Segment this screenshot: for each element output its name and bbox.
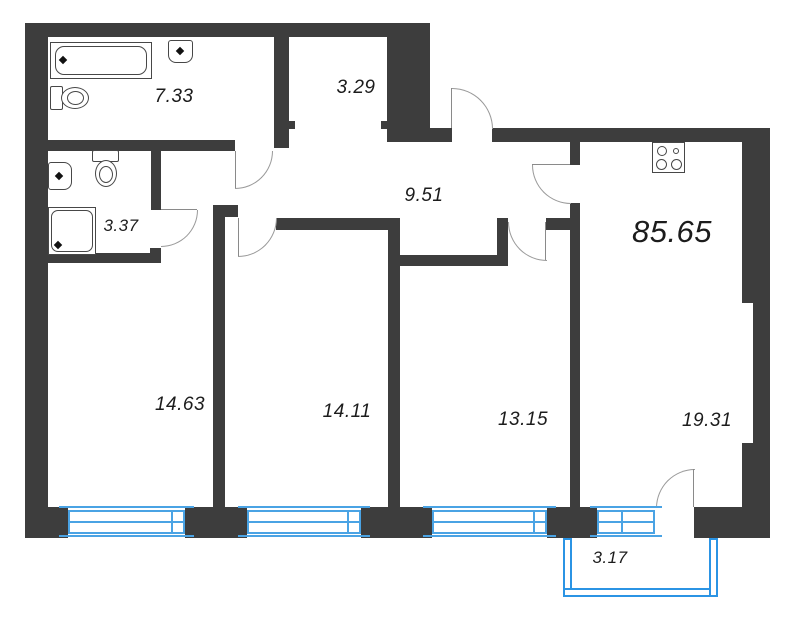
- wall-niche-south: [400, 255, 500, 266]
- total-area-label: 85.65: [632, 214, 712, 250]
- window-icon: [434, 521, 545, 523]
- stove-burner-icon: [673, 148, 679, 154]
- wall-bottom-a: [25, 507, 68, 538]
- window-icon: [59, 535, 194, 537]
- floor-plan: 7.33 3.29 9.51 3.37 85.65 14.63 14.11 13…: [0, 0, 800, 622]
- room-area-label-bathroom: 7.33: [155, 86, 194, 108]
- wall-pillar: [387, 23, 430, 142]
- window-icon: [249, 521, 359, 523]
- window-icon: [590, 535, 662, 537]
- stove-burner-icon: [671, 159, 682, 170]
- toilet-icon: [99, 166, 113, 183]
- stove-burner-icon: [657, 146, 667, 156]
- wall-wc-east: [151, 151, 161, 210]
- window-icon: [171, 512, 173, 532]
- window-icon: [238, 506, 370, 508]
- wall-bedroom1-east-cap: [225, 205, 238, 217]
- wall-bathroom-south: [25, 140, 235, 151]
- window-icon: [533, 512, 535, 532]
- wall-right-notch: [753, 303, 770, 443]
- room-area-label-kitchen-living: 19.31: [682, 410, 732, 432]
- wall-bedroom3-door-piece: [546, 218, 570, 230]
- wall-right-upper: [742, 128, 770, 303]
- balcony-door-leaf: [693, 469, 694, 507]
- opening-jamb-left: [289, 121, 295, 129]
- wall-bedroom2-bedroom3: [388, 218, 400, 507]
- bathroom-door-arc: [235, 151, 273, 189]
- kitchen-door-arc: [532, 165, 571, 204]
- wall-top: [25, 23, 430, 37]
- wall-bathroom-storage-divider: [274, 37, 289, 148]
- room-area-label-bedroom1: 14.63: [155, 394, 205, 416]
- stove-burner-icon: [656, 159, 667, 170]
- wall-hall-bedroom2: [276, 218, 400, 230]
- wc-door-arc: [161, 210, 198, 247]
- entrance-door-arc: [452, 88, 493, 129]
- room-area-label-wc: 3.37: [103, 216, 138, 236]
- room-area-label-hallway: 9.51: [405, 185, 444, 207]
- wall-top-right-a: [430, 128, 452, 142]
- room-area-label-balcony: 3.17: [592, 548, 627, 568]
- room-area-label-storage: 3.29: [337, 77, 376, 99]
- window-icon: [590, 506, 662, 508]
- wall-niche-stub: [497, 218, 508, 266]
- balcony-door-arc: [656, 469, 695, 508]
- wc-door-leaf: [161, 209, 197, 210]
- bedroom3-door-leaf: [545, 222, 546, 260]
- window-icon: [59, 506, 194, 508]
- wall-kitchen-west-lower: [570, 203, 580, 507]
- opening-jamb-right: [381, 121, 387, 129]
- balcony-glazing-bottom: [563, 588, 718, 597]
- wall-bottom-b: [185, 507, 247, 538]
- bedroom3-door-arc: [508, 222, 547, 261]
- room-area-label-bedroom2: 14.11: [323, 401, 372, 423]
- bedroom2-door-leaf: [238, 218, 239, 256]
- window-icon: [621, 512, 623, 532]
- bathroom-door-leaf: [235, 151, 236, 188]
- bedroom2-door-arc: [238, 218, 277, 257]
- wall-top-right-b: [492, 128, 742, 142]
- window-icon: [238, 535, 370, 537]
- window-icon: [423, 535, 556, 537]
- wall-kitchen-west-upper: [570, 140, 580, 165]
- toilet-icon: [67, 91, 84, 105]
- entrance-door-leaf: [451, 88, 452, 128]
- bathtub-icon: [55, 46, 147, 75]
- window-icon: [70, 521, 183, 523]
- kitchen-door-leaf: [532, 164, 570, 165]
- wall-bottom-e: [694, 507, 770, 538]
- window-icon: [599, 521, 653, 523]
- wall-left: [25, 23, 48, 538]
- wall-bedroom1-east: [213, 205, 225, 507]
- wall-bottom-d: [547, 507, 597, 538]
- room-area-label-bedroom3: 13.15: [498, 409, 548, 431]
- balcony-glazing-right: [709, 538, 718, 597]
- window-icon: [423, 506, 556, 508]
- window-icon: [347, 512, 349, 532]
- wall-bottom-c: [361, 507, 432, 538]
